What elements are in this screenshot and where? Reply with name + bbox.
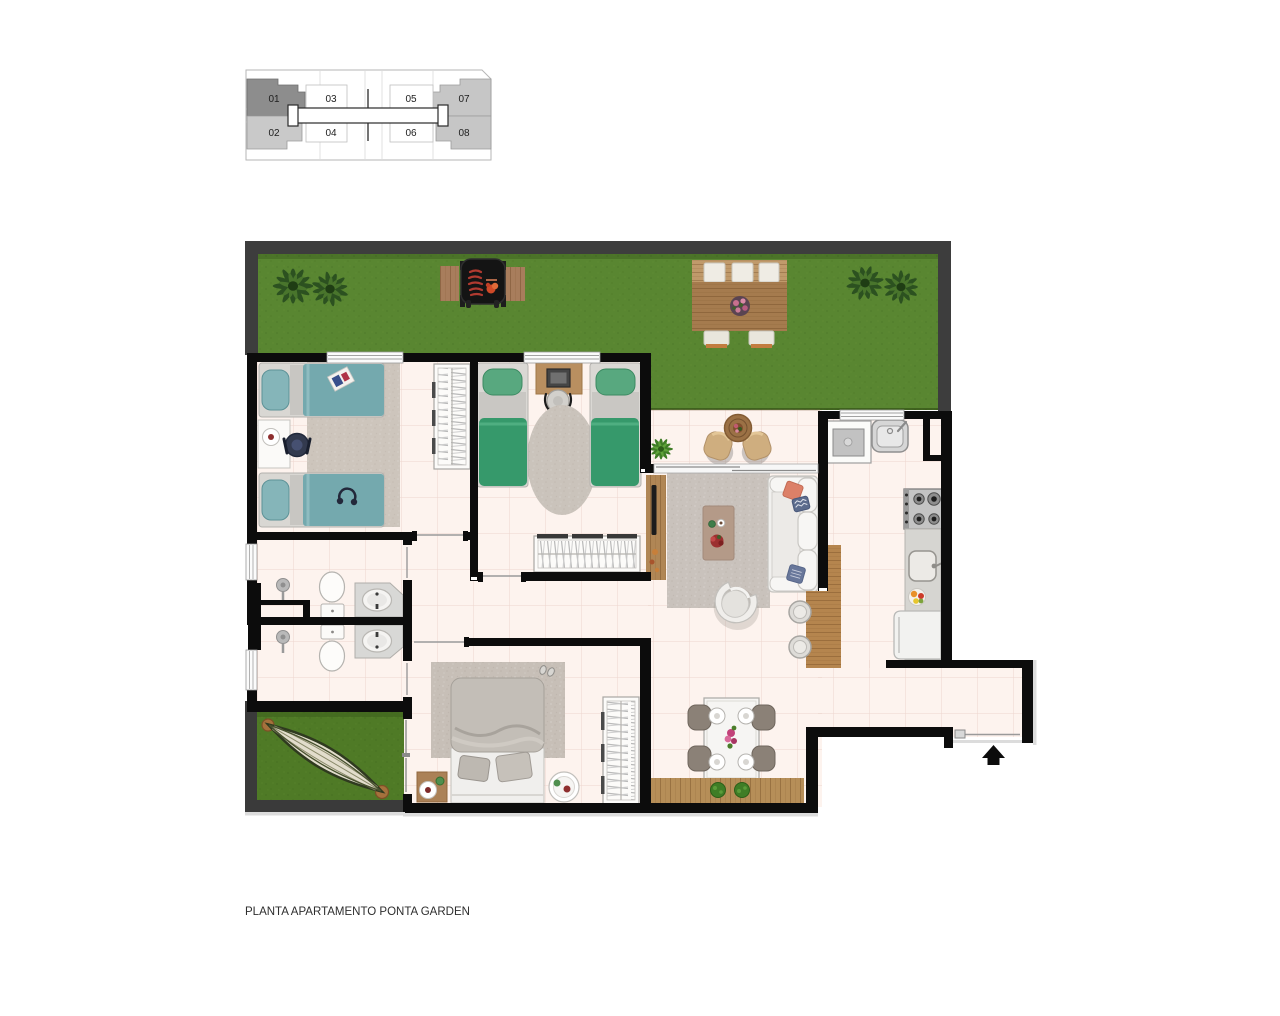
svg-text:05: 05 (405, 94, 417, 105)
svg-text:04: 04 (325, 128, 337, 139)
svg-text:01: 01 (268, 94, 280, 105)
svg-text:06: 06 (405, 128, 417, 139)
svg-text:03: 03 (325, 94, 337, 105)
svg-text:07: 07 (458, 94, 470, 105)
svg-text:08: 08 (458, 128, 470, 139)
svg-text:PLANTA APARTAMENTO PONTA GARDE: PLANTA APARTAMENTO PONTA GARDEN (245, 906, 470, 918)
svg-text:02: 02 (268, 128, 280, 139)
